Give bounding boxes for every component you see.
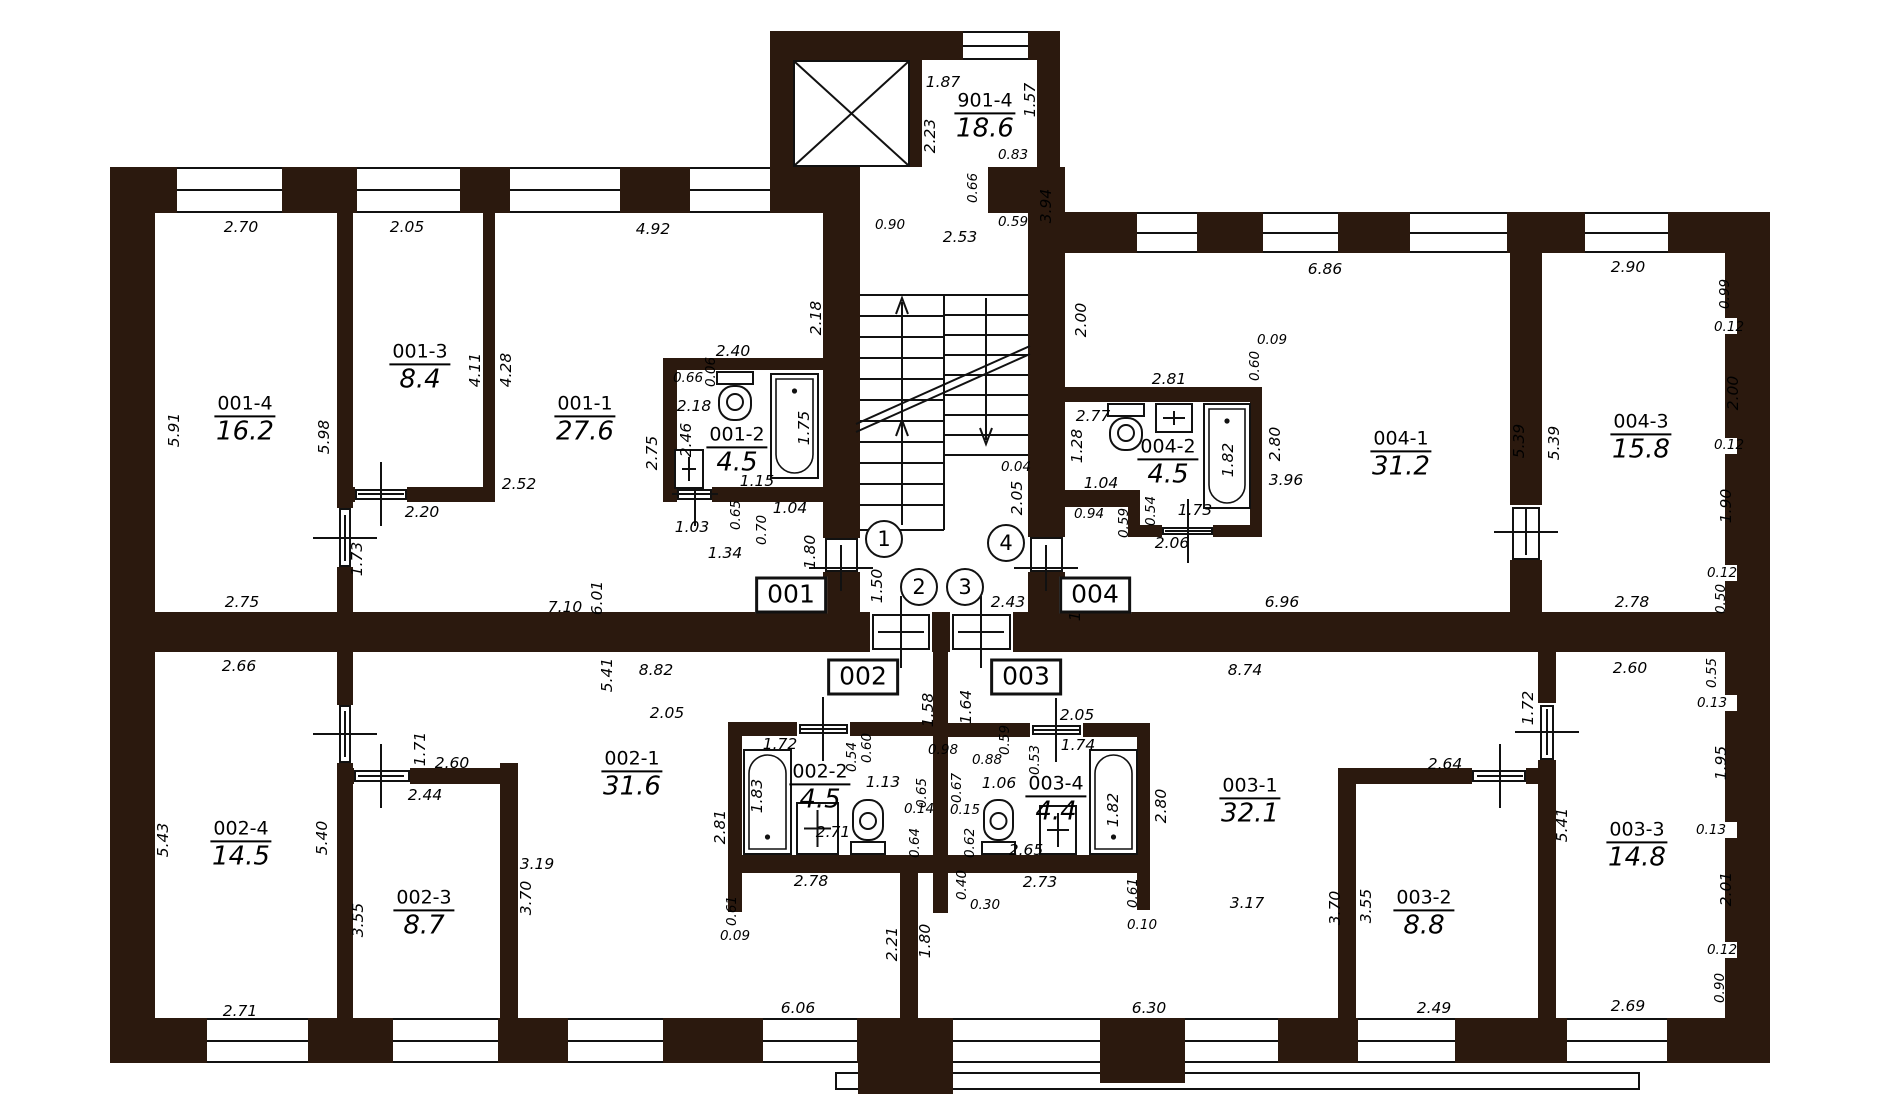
dimension-label: 5.43: [154, 823, 172, 858]
dimension-label: 2.70: [224, 218, 259, 236]
dimension-label: 0.99: [1717, 279, 1733, 309]
door-opening: [677, 489, 712, 500]
dimension-label: 0.88: [972, 752, 1002, 768]
room-area: 32.1: [1219, 800, 1280, 827]
dimension-label: 0.70: [754, 515, 770, 545]
apartment-entrance-marker: 2: [900, 568, 938, 606]
door-opening: [1472, 770, 1526, 782]
room-number: 001-3: [389, 342, 450, 365]
dimension-label: 0.40: [954, 870, 970, 900]
room-number: 003-3: [1606, 820, 1667, 843]
wall-segment: [728, 855, 933, 873]
wall-segment: [948, 723, 1030, 737]
dimension-label: 0.98: [928, 742, 958, 758]
dimension-label: 0.62: [962, 828, 978, 858]
dimension-label: 0.94: [1074, 506, 1104, 522]
wall-segment: [1667, 1018, 1770, 1063]
room-number: 003-4: [1025, 774, 1086, 797]
wall-segment: [500, 763, 518, 1018]
door-opening: [825, 538, 858, 572]
wall-segment: [110, 1018, 207, 1063]
apartment-number-box: 001: [755, 577, 827, 614]
room-label: 004-24.5: [1137, 437, 1198, 488]
room-area: 8.7: [393, 912, 454, 939]
room-area: 14.8: [1606, 844, 1667, 871]
door-opening: [339, 705, 351, 763]
dimension-label: 1.82: [1219, 443, 1237, 478]
wall-segment: [1037, 60, 1060, 185]
room-area: 15.8: [1610, 436, 1671, 463]
door-opening: [1032, 725, 1081, 735]
dimension-label: 2.81: [711, 810, 729, 845]
dimension-label: 0.90: [875, 217, 905, 233]
apartment-number-box: 004: [1059, 577, 1131, 614]
dimension-label: 2.06: [1155, 534, 1190, 552]
room-number: 004-2: [1137, 437, 1198, 460]
dimension-label: 0.54: [1143, 496, 1159, 526]
room-label: 003-132.1: [1219, 776, 1280, 827]
window: [1410, 212, 1507, 253]
dimension-label: 2.73: [1023, 873, 1058, 891]
wall-segment: [933, 652, 948, 913]
dimension-label: 2.90: [1611, 258, 1646, 276]
door-opening: [1030, 537, 1063, 572]
wall-segment: [1213, 525, 1250, 537]
wall-segment: [337, 652, 353, 705]
dimension-label: 0.90: [1712, 973, 1728, 1003]
dimension-label: 2.52: [502, 475, 537, 493]
dimension-label: 1.75: [795, 411, 813, 446]
dimension-label: 0.55: [1704, 658, 1720, 688]
dimension-label: 3.17: [1230, 894, 1265, 912]
wall-segment: [1060, 212, 1137, 253]
wall-segment: [1065, 490, 1140, 507]
wall-segment: [1338, 212, 1410, 253]
dimension-label: 0.60: [1247, 351, 1263, 381]
room-area: 27.6: [554, 418, 615, 445]
dimension-label: 1.06: [982, 774, 1017, 792]
dimension-label: 7.10: [548, 598, 583, 616]
wall-segment: [1278, 1018, 1358, 1063]
dimension-label: 2.18: [677, 397, 712, 415]
dimension-label: 2.44: [408, 786, 443, 804]
stair-arrowhead: [896, 298, 908, 314]
wall-segment: [1197, 212, 1263, 253]
window: [1137, 212, 1197, 253]
dimension-label: 2.71: [223, 1002, 258, 1020]
dimension-label: 1.80: [916, 924, 934, 959]
dimension-label: 2.00: [1072, 303, 1090, 338]
dimension-label: 0.12: [1714, 319, 1744, 335]
dimension-label: 0.64: [907, 828, 923, 858]
dimension-label: 8.82: [639, 661, 674, 679]
window: [963, 31, 1028, 60]
room-number: 901-4: [954, 91, 1015, 114]
plan-line: [856, 354, 1030, 432]
dimension-label: 5.40: [313, 821, 331, 856]
dimension-label: 2.53: [943, 228, 978, 246]
room-number: 003-2: [1393, 888, 1454, 911]
room-number: 003-1: [1219, 776, 1280, 799]
wall-segment: [460, 167, 510, 213]
dimension-label: 0.61: [1125, 878, 1141, 908]
dimension-label: 0.59: [998, 214, 1028, 230]
dimension-label: 1.64: [957, 690, 975, 725]
dimension-label: 2.01: [1717, 872, 1735, 907]
apartment-number-box: 002: [827, 659, 899, 696]
dimension-label: 2.81: [1152, 370, 1187, 388]
wall-segment: [110, 167, 177, 213]
dimension-label: 3.55: [1357, 889, 1375, 924]
wall-segment: [770, 31, 793, 168]
window: [1567, 1018, 1667, 1063]
door-opening: [1540, 705, 1554, 760]
window: [177, 167, 282, 213]
dimension-label: 0.12: [1707, 565, 1737, 581]
dimension-label: 1.95: [1712, 746, 1730, 781]
room-number: 004-1: [1370, 429, 1431, 452]
dimension-label: 2.75: [225, 593, 260, 611]
dimension-label: 0.09: [1257, 332, 1287, 348]
dimension-label: 0.13: [1697, 695, 1727, 711]
toilet-icon: [1108, 404, 1144, 416]
dimension-label: 1.87: [926, 73, 961, 91]
dimension-label: 0.06: [703, 357, 719, 387]
wall-segment: [337, 213, 353, 508]
dimension-label: 2.65: [1009, 841, 1044, 859]
dimension-label: 2.80: [1266, 427, 1284, 462]
wall-segment: [728, 722, 742, 912]
wall-segment: [337, 763, 353, 1018]
dimension-label: 2.40: [716, 342, 751, 360]
dimension-label: 6.01: [588, 581, 606, 616]
apartment-entrance-marker: 4: [987, 524, 1025, 562]
dimension-label: 1.80: [801, 535, 819, 570]
dimension-label: 0.60: [859, 733, 875, 763]
wall-segment: [932, 612, 950, 652]
dimension-label: 6.06: [781, 999, 816, 1017]
dimension-label: 2.23: [921, 119, 939, 154]
dimension-label: 3.55: [349, 903, 367, 938]
dimension-label: 6.30: [1132, 999, 1167, 1017]
room-label: 001-38.4: [389, 342, 450, 393]
stair-arrowhead: [896, 420, 908, 436]
room-area: 18.6: [954, 115, 1015, 142]
room-area: 4.5: [1137, 461, 1198, 488]
room-area: 31.6: [601, 773, 662, 800]
dimension-label: 1.73: [348, 542, 366, 577]
wall-segment: [110, 612, 870, 652]
window: [763, 1018, 857, 1063]
wall-segment: [1028, 31, 1060, 60]
room-label: 002-131.6: [601, 749, 662, 800]
dimension-label: 2.78: [1615, 593, 1650, 611]
dimension-label: 2.77: [1076, 407, 1111, 425]
wall-segment: [282, 167, 357, 213]
dimension-label: 2.80: [1152, 789, 1170, 824]
dimension-label: 4.92: [636, 220, 671, 238]
apartment-number-box: 003: [990, 659, 1062, 696]
room-number: 001-1: [554, 394, 615, 417]
window: [1263, 212, 1338, 253]
room-label: 004-315.8: [1610, 412, 1671, 463]
wall-segment: [407, 487, 483, 502]
window: [1185, 1018, 1278, 1063]
room-number: 002-4: [210, 819, 271, 842]
wall-segment: [1065, 387, 1262, 402]
room-label: 001-416.2: [214, 394, 275, 445]
dimension-label: 2.60: [1613, 659, 1648, 677]
dimension-label: 0.83: [998, 147, 1028, 163]
room-label: 901-418.6: [954, 91, 1015, 142]
wall-segment: [1538, 760, 1556, 1018]
dimension-label: 1.04: [773, 499, 808, 517]
dimension-label: 1.71: [411, 732, 429, 767]
window: [690, 167, 770, 213]
wall-segment: [1510, 253, 1542, 505]
dimension-label: 2.64: [1428, 755, 1463, 773]
dimension-label: 5.41: [1553, 808, 1571, 843]
dimension-label: 0.13: [1696, 822, 1726, 838]
wall-segment: [823, 572, 860, 612]
dimension-label: 0.14: [904, 801, 934, 817]
dimension-label: 0.50: [1713, 584, 1729, 614]
dimension-label: 2.00: [1724, 376, 1742, 411]
dimension-label: 2.05: [390, 218, 425, 236]
wall-notch: [1725, 822, 1737, 838]
room-number: 002-2: [789, 762, 850, 785]
door-opening: [354, 770, 410, 782]
dimension-label: 0.04: [1001, 459, 1031, 475]
dimension-label: 1.50: [868, 569, 886, 604]
door-opening: [872, 614, 930, 650]
dimension-label: 0.15: [950, 802, 980, 818]
window: [357, 167, 460, 213]
dimension-label: 2.66: [222, 657, 257, 675]
dimension-label: 1.90: [1717, 489, 1735, 524]
room-area: 4.4: [1025, 798, 1086, 825]
wall-segment: [483, 213, 495, 502]
dimension-label: 1.83: [748, 779, 766, 814]
room-number: 004-3: [1610, 412, 1671, 435]
dimension-label: 5.98: [315, 420, 333, 455]
window: [393, 1018, 498, 1063]
dimension-label: 3.96: [1269, 471, 1304, 489]
window: [207, 1018, 308, 1063]
dimension-label: 0.66: [965, 173, 981, 203]
wall-segment: [337, 768, 354, 784]
dimension-label: 0.61: [724, 896, 740, 926]
dimension-label: 2.18: [807, 301, 825, 336]
window: [568, 1018, 663, 1063]
wall-segment: [1028, 212, 1065, 537]
wall-segment: [857, 1018, 953, 1063]
dimension-label: 0.12: [1707, 942, 1737, 958]
wall-segment: [1526, 768, 1538, 784]
dimension-label: 2.78: [794, 872, 829, 890]
wall-segment: [1538, 652, 1556, 703]
dimension-label: 8.74: [1228, 661, 1263, 679]
room-label: 003-314.8: [1606, 820, 1667, 871]
dimension-label: 1.72: [1519, 691, 1537, 726]
dimension-label: 2.71: [816, 823, 851, 841]
wall-segment: [823, 213, 860, 538]
dimension-label: 1.04: [1084, 474, 1119, 492]
dimension-label: 0.30: [970, 897, 1000, 913]
dimension-label: 0.10: [1127, 917, 1157, 933]
dimension-label: 0.66: [673, 370, 703, 386]
room-label: 002-414.5: [210, 819, 271, 870]
window: [1585, 212, 1668, 253]
room-label: 004-131.2: [1370, 429, 1431, 480]
dimension-label: 0.65: [728, 500, 744, 530]
door-opening: [799, 724, 848, 734]
room-area: 14.5: [210, 843, 271, 870]
dimension-label: 5.91: [165, 413, 183, 448]
window: [953, 1018, 1100, 1063]
dimension-label: 1.03: [675, 518, 710, 536]
wall-segment: [770, 31, 963, 60]
sink-icon: [1156, 404, 1192, 432]
dimension-label: 5.39: [1510, 424, 1528, 459]
dimension-label: 2.46: [677, 423, 695, 458]
room-number: 001-2: [706, 425, 767, 448]
wall-segment: [1100, 1063, 1185, 1083]
dimension-label: 2.05: [650, 704, 685, 722]
room-label: 003-44.4: [1025, 774, 1086, 825]
door-opening: [1512, 507, 1540, 560]
dimension-label: 5.39: [1545, 426, 1563, 461]
door-opening: [952, 614, 1011, 650]
door-opening: [355, 489, 407, 500]
dimension-label: 3.19: [520, 855, 555, 873]
room-label: 002-24.5: [789, 762, 850, 813]
dimension-label: 5.41: [598, 658, 616, 693]
room-area: 8.8: [1393, 912, 1454, 939]
wall-segment: [1510, 560, 1542, 612]
dimension-label: 1.34: [708, 544, 743, 562]
dimension-label: 4.11: [466, 353, 484, 388]
wall-segment: [498, 1018, 568, 1063]
dimension-label: 2.05: [1008, 481, 1026, 516]
window: [1358, 1018, 1455, 1063]
apartment-entrance-marker: 3: [946, 568, 984, 606]
dimension-label: 3.94: [1037, 189, 1055, 224]
dimension-label: 0.09: [720, 928, 750, 944]
room-area: 4.5: [789, 786, 850, 813]
wall-segment: [308, 1018, 393, 1063]
dimension-label: 1.82: [1104, 793, 1122, 828]
dimension-label: 1.72: [763, 735, 798, 753]
room-area: 4.5: [706, 449, 767, 476]
floor-plan-canvas: 2.702.054.925.915.984.114.282.400.660.06…: [0, 0, 1884, 1094]
dimension-label: 2.60: [435, 754, 470, 772]
entrance-step: [835, 1072, 1640, 1090]
toilet-icon: [851, 842, 885, 854]
dimension-label: 3.70: [1326, 891, 1344, 926]
dimension-label: 1.58: [919, 693, 937, 728]
dimension-label: 2.05: [1060, 706, 1095, 724]
dimension-label: 0.59: [997, 725, 1013, 755]
dimension-label: 0.12: [1714, 437, 1744, 453]
dimension-label: 3.70: [517, 881, 535, 916]
dimension-label: 2.69: [1611, 997, 1646, 1015]
plan-linework: [0, 0, 1884, 1094]
dimension-label: 0.59: [1116, 508, 1132, 538]
room-number: 001-4: [214, 394, 275, 417]
room-label: 001-24.5: [706, 425, 767, 476]
dimension-label: 2.49: [1417, 999, 1452, 1017]
dimension-label: 2.75: [643, 436, 661, 471]
dimension-label: 0.53: [1027, 745, 1043, 775]
room-label: 002-38.7: [393, 888, 454, 939]
dimension-label: 2.20: [405, 503, 440, 521]
dimension-label: 6.96: [1265, 593, 1300, 611]
dimension-label: 1.13: [866, 773, 901, 791]
wall-segment: [1250, 402, 1262, 537]
dimension-label: 6.86: [1308, 260, 1343, 278]
dimension-label: 2.21: [883, 927, 901, 962]
dimension-label: 1.57: [1021, 83, 1039, 118]
wall-segment: [1013, 612, 1770, 652]
wall-segment: [663, 1018, 763, 1063]
window: [510, 167, 620, 213]
wall-segment: [948, 855, 1150, 873]
room-label: 001-127.6: [554, 394, 615, 445]
apartment-entrance-marker: 1: [865, 520, 903, 558]
elevator-shaft: [793, 60, 910, 167]
wall-segment: [620, 167, 690, 213]
wall-segment: [770, 167, 860, 213]
dimension-label: 1.73: [1178, 501, 1213, 519]
dimension-label: 1.74: [1061, 736, 1096, 754]
stair-arrowhead: [980, 428, 992, 444]
dimension-label: 1.28: [1068, 429, 1086, 464]
room-area: 16.2: [214, 418, 275, 445]
toilet-icon: [717, 372, 753, 384]
wall-segment: [1100, 1018, 1185, 1063]
room-area: 31.2: [1370, 453, 1431, 480]
dimension-label: 4.28: [497, 353, 515, 388]
room-area: 8.4: [389, 366, 450, 393]
room-number: 002-3: [393, 888, 454, 911]
wall-segment: [1507, 212, 1585, 253]
dimension-label: 0.67: [949, 773, 965, 803]
wall-segment: [858, 1063, 953, 1094]
plan-line: [856, 346, 1030, 424]
dimension-label: 2.43: [991, 593, 1026, 611]
room-label: 003-28.8: [1393, 888, 1454, 939]
wall-segment: [337, 487, 355, 502]
wall-segment: [1455, 1018, 1567, 1063]
room-number: 002-1: [601, 749, 662, 772]
